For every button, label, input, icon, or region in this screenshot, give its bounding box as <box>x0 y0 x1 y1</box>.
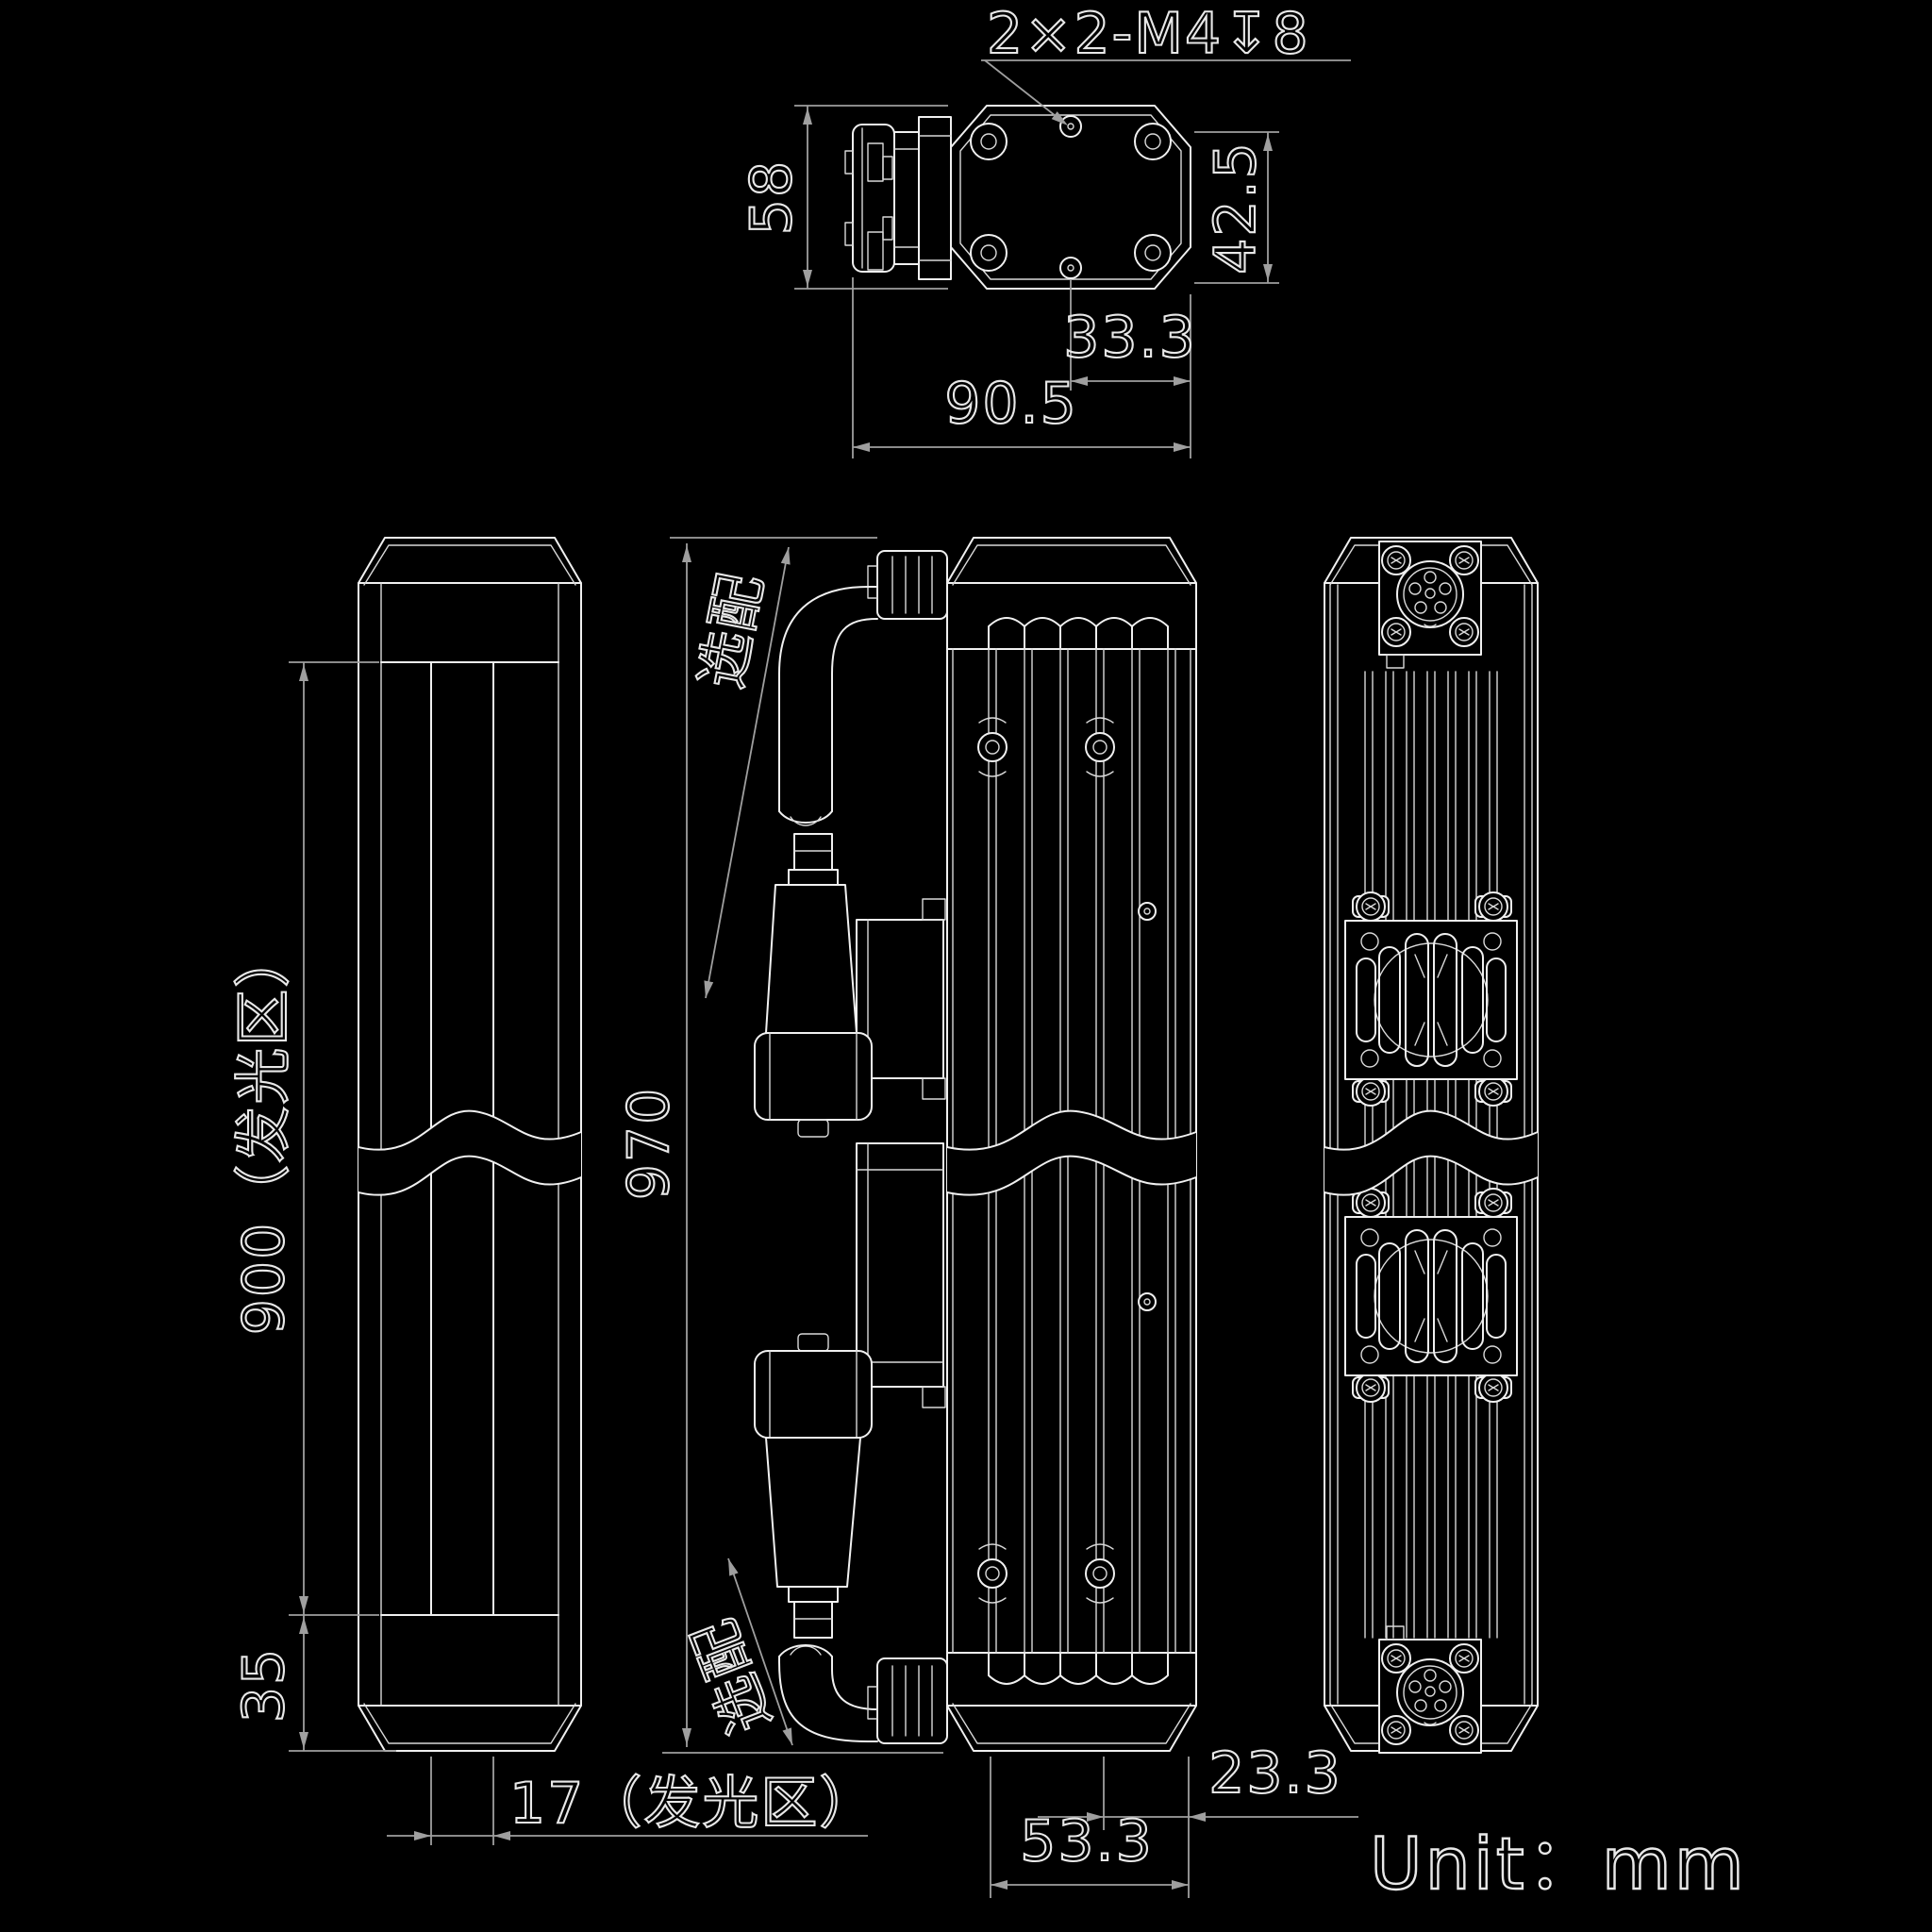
unit-label: Unit：mm <box>1370 1822 1747 1906</box>
top-view <box>845 106 1191 289</box>
dim-53-3-label: 53.3 <box>1020 1808 1154 1874</box>
dim-900-label: 900（发光区） <box>231 929 297 1336</box>
bottom-cable-assembly <box>755 1334 947 1743</box>
circular-connector-top <box>1379 541 1481 655</box>
technical-drawing-page: 2×2-M4↧8 58 42.5 33.3 90.5 900（发光区） <box>0 0 1932 1932</box>
dim-17-label: 17（发光区） <box>509 1771 877 1837</box>
fan-module-lower <box>1345 1189 1517 1402</box>
dim-35-label: 35 <box>231 1647 297 1723</box>
dim-58-label: 58 <box>739 159 805 235</box>
circular-connector-bottom <box>1379 1640 1481 1753</box>
dim-23-3-label: 23.3 <box>1208 1740 1342 1807</box>
dim-33-3-label: 33.3 <box>1063 305 1197 371</box>
dim-42-5-label: 42.5 <box>1203 141 1269 275</box>
front-view <box>358 538 581 1751</box>
back-view <box>1324 538 1538 1753</box>
fan-module-upper <box>1345 892 1517 1106</box>
top-view-connector <box>845 117 951 279</box>
dim-90-5-label: 90.5 <box>944 371 1078 437</box>
thread-callout-label: 2×2-M4↧8 <box>987 1 1310 67</box>
optional-label-top: 选配 <box>689 566 775 693</box>
side-view <box>755 538 1196 1751</box>
dimension-drawing: 2×2-M4↧8 58 42.5 33.3 90.5 900（发光区） <box>0 0 1932 1932</box>
dim-970-label: 970 <box>616 1087 682 1201</box>
